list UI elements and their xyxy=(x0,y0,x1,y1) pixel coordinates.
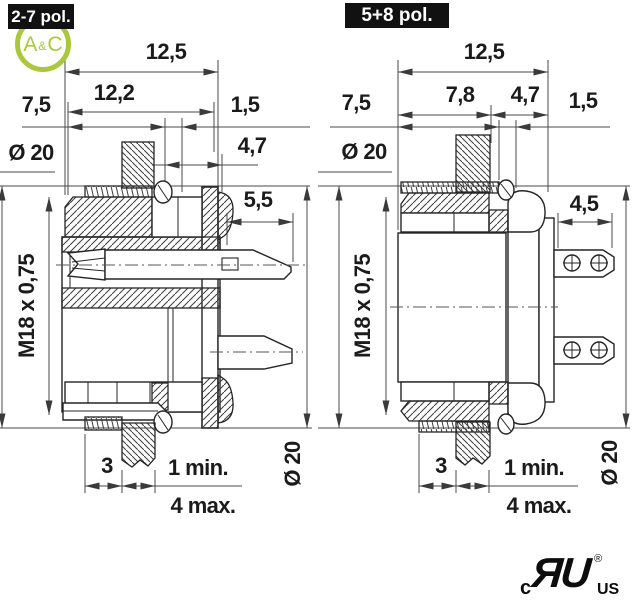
logo-letter-a: A xyxy=(23,34,37,55)
technical-drawing-page: 2-7 pol. 5+8 pol. A&C 12,5 12,2 7,5 1,5 … xyxy=(0,0,632,600)
dim-left-thread: M18 x 0,75 xyxy=(16,254,38,358)
dim-right-overall-width: 12,5 xyxy=(464,41,504,63)
right-insulator-plate xyxy=(539,218,554,402)
dim-right-lug-length: 4,5 xyxy=(570,193,599,215)
dim-right-front-segment: 7,8 xyxy=(446,84,475,106)
right-section-block-top xyxy=(489,210,508,232)
dim-left-panel-min: 1 min. xyxy=(168,457,228,479)
right-seal-lip-bottom xyxy=(508,383,545,424)
right-nut-step-top xyxy=(401,213,489,232)
dim-right-rear-diameter: Ø 20 xyxy=(599,440,621,485)
dim-left-rear-diameter: Ø 20 xyxy=(282,441,304,486)
dim-left-rear-offset: 4,7 xyxy=(238,135,267,157)
dim-right-rear-segment: 4,7 xyxy=(511,84,540,106)
left-pin-notch xyxy=(222,258,238,270)
left-flange-section-bottom xyxy=(202,378,218,428)
dim-left-flange-thickness: 1,5 xyxy=(231,94,260,116)
left-connector-drawing xyxy=(0,60,312,493)
dim-left-body-width: 12,2 xyxy=(94,82,134,104)
left-panel-section-top xyxy=(122,142,154,188)
dim-right-panel-max: 4 max. xyxy=(507,495,572,517)
left-lock-nut-top xyxy=(65,197,152,237)
ul-certification-mark: c ЯU ® US xyxy=(498,550,632,600)
right-seal-lip-top xyxy=(508,191,545,232)
dim-left-overall-width: 12,5 xyxy=(146,41,186,63)
right-panel-section-bottom xyxy=(456,422,490,465)
dim-right-thread: M18 x 0,75 xyxy=(352,254,374,358)
left-nut-step xyxy=(152,197,202,237)
left-seal-lip-bottom xyxy=(218,375,233,423)
dim-left-panel-max: 4 max. xyxy=(171,495,236,517)
right-lock-nut-top xyxy=(401,193,489,213)
logo-letter-c: C xyxy=(47,34,62,55)
right-section-block-bottom xyxy=(489,382,508,404)
left-shell-wall-bottom xyxy=(62,288,220,308)
variant-label-right: 5+8 pol. xyxy=(345,3,449,28)
left-knurl-band-bottom xyxy=(85,417,122,430)
dim-right-front-length: 7,5 xyxy=(342,92,371,114)
dim-right-front-diameter: Ø 20 xyxy=(341,141,386,163)
dim-right-nut-depth: 3 xyxy=(435,455,447,477)
left-seal-lip-top xyxy=(218,192,233,240)
dim-right-panel-min: 1 min. xyxy=(504,457,564,479)
logo-ampersand: & xyxy=(38,40,46,52)
right-panel-section-top xyxy=(456,135,490,192)
left-panel-section-bottom xyxy=(122,423,155,467)
ul-country-suffix: US xyxy=(597,582,619,598)
registered-trademark-icon: ® xyxy=(594,554,602,565)
right-lock-nut-bottom xyxy=(401,401,489,421)
dim-right-flange-thickness: 1,5 xyxy=(569,90,598,112)
variant-label-left: 2-7 pol. xyxy=(8,4,74,29)
dim-left-nut-depth: 3 xyxy=(101,455,113,477)
dim-left-front-length: 7,5 xyxy=(22,94,51,116)
ul-monogram-icon: ЯU xyxy=(530,552,591,594)
dim-left-front-diameter: Ø 20 xyxy=(8,142,53,164)
dim-left-contact-length: 5,5 xyxy=(244,189,273,211)
right-nut-step-bottom xyxy=(401,382,489,401)
